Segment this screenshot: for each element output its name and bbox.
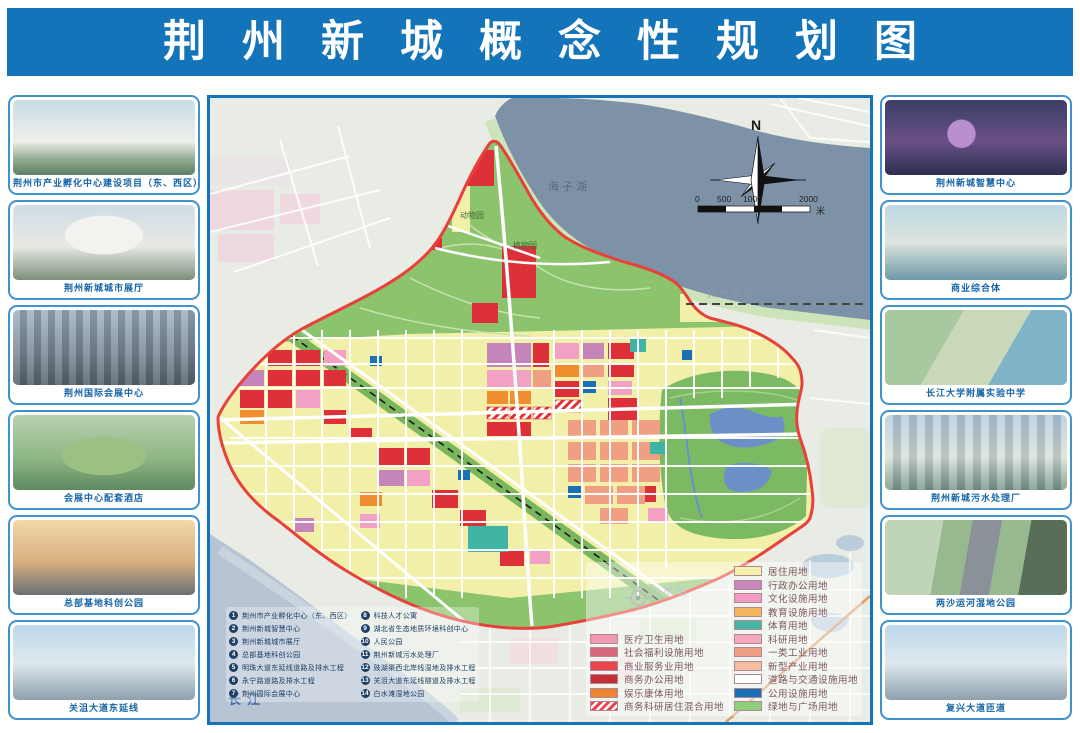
project-caption: 荆州市产业孵化中心建设项目（东、西区） (13, 175, 195, 190)
legend-item: 商务科研居住混合用地 (590, 700, 724, 714)
project-photo (13, 205, 195, 280)
project-caption: 荆州新城污水处理厂 (885, 490, 1067, 505)
project-index-label: 湖北省生态地质环境科创中心 (374, 624, 469, 634)
legend-item: 科研用地 (734, 632, 858, 646)
legend-swatch (734, 607, 762, 617)
svg-text:500: 500 (717, 194, 731, 204)
project-photo (885, 100, 1067, 175)
project-caption: 总部基地科创公园 (13, 595, 195, 610)
legend-label: 一类工业用地 (768, 645, 828, 659)
project-card: 荆州新城污水处理厂 (880, 410, 1072, 510)
legend-label: 新型产业用地 (768, 659, 828, 673)
legend-item: 居住用地 (734, 565, 858, 579)
page-title: 荆州新城概念性规划图 (127, 21, 953, 64)
project-index-item: 3 荆州新城城市展厅 (229, 635, 352, 648)
project-photo (885, 310, 1067, 385)
legend-swatch (590, 701, 618, 711)
project-index-number: 9 (361, 624, 370, 633)
project-index-number: 5 (229, 663, 238, 672)
legend-label: 道路与交通设施用地 (768, 672, 858, 686)
project-index-item: 5 明珠大道东延线道路及排水工程 (229, 661, 352, 674)
legend-swatch (734, 580, 762, 590)
project-card: 商业综合体 (880, 200, 1072, 300)
legend-swatch (734, 593, 762, 603)
project-index-number: 1 (229, 611, 238, 620)
legend-label: 商务科研居住混合用地 (624, 699, 724, 713)
svg-text:0: 0 (695, 194, 700, 204)
project-index-item: 1 荆州市产业孵化中心（东、西区） (229, 609, 352, 622)
project-index-number: 2 (229, 624, 238, 633)
project-index-item: 12 豉湖渠西北岸线湿地及排水工程 (361, 661, 476, 674)
legend-label: 科研用地 (768, 632, 808, 646)
project-index-number: 4 (229, 650, 238, 659)
project-index-label: 荆州新城城市展厅 (242, 637, 300, 647)
planning-poster: 荆州新城概念性规划图 荆州市产业孵化中心建设项目（东、西区） 荆州新城城市展厅 … (0, 0, 1080, 733)
botanic-garden-label: 植物园 (513, 240, 537, 250)
project-index-item: 4 总部基地科创公园 (229, 648, 352, 661)
project-card: 两沙运河湿地公园 (880, 515, 1072, 615)
legend-item: 公用设施用地 (734, 686, 858, 700)
project-caption: 长江大学附属实验中学 (885, 385, 1067, 400)
legend-label: 体育用地 (768, 618, 808, 632)
legend-swatch (590, 674, 618, 684)
legend-swatch (590, 661, 618, 671)
project-photo (885, 625, 1067, 700)
project-index-label: 荆州市产业孵化中心（东、西区） (242, 611, 352, 621)
project-index-item: 13 关沮大道东延线隧道及排水工程 (361, 674, 476, 687)
project-index-label: 永宁路道路及排水工程 (242, 676, 315, 686)
legend-item: 娱乐康体用地 (590, 686, 724, 700)
project-index-label: 荆州新城污水处理厂 (374, 650, 440, 660)
legend-item: 新型产业用地 (734, 659, 858, 673)
compass-north-label: N (751, 117, 761, 133)
legend-right-column: 居住用地 行政办公用地 文化设施用地 教育设施用地 (734, 565, 858, 714)
legend-item: 道路与交通设施用地 (734, 673, 858, 687)
legend-swatch (590, 688, 618, 698)
project-index: 1 荆州市产业孵化中心（东、西区） 2 荆州新城智慧中心 3 荆州新城城市展厅 (226, 607, 479, 702)
legend-label: 商务办公用地 (624, 672, 684, 686)
legend-swatch (734, 566, 762, 576)
pipeline-label: 川气东送 (708, 288, 754, 300)
legend-swatch (734, 701, 762, 711)
svg-text:1000: 1000 (743, 194, 762, 204)
legend-label: 公用设施用地 (768, 686, 828, 700)
scale-unit: 米 (816, 205, 825, 216)
project-index-item: 8 科技人才公寓 (361, 609, 476, 622)
legend-label: 娱乐康体用地 (624, 686, 684, 700)
project-photo (885, 205, 1067, 280)
project-index-label: 科技人才公寓 (374, 611, 418, 621)
legend-left-column: 医疗卫生用地 社会福利设施用地 商业服务业用地 商务办公用地 (590, 632, 724, 713)
project-index-number: 10 (361, 637, 370, 646)
project-card: 总部基地科创公园 (8, 515, 200, 615)
legend-swatch (734, 674, 762, 684)
legend-item: 商务办公用地 (590, 673, 724, 687)
zoo-label: 动物园 (460, 210, 484, 220)
lake-label: 海子湖 (548, 179, 590, 193)
project-index-number: 13 (361, 676, 370, 685)
legend-label: 绿地与广场用地 (768, 699, 838, 713)
project-card: 关沮大道东延线 (8, 620, 200, 720)
legend-item: 体育用地 (734, 619, 858, 633)
project-caption: 荆州国际会展中心 (13, 385, 195, 400)
project-caption: 荆州新城智慧中心 (885, 175, 1067, 190)
project-index-label: 荆州新城智慧中心 (242, 624, 300, 634)
legend-label: 行政办公用地 (768, 578, 828, 592)
project-index-label: 人民公园 (374, 637, 403, 647)
project-index-number: 12 (361, 663, 370, 672)
project-index-label: 明珠大道东延线道路及排水工程 (242, 663, 344, 673)
legend-swatch (590, 647, 618, 657)
legend-item: 商业服务业用地 (590, 659, 724, 673)
project-index-item: 6 永宁路道路及排水工程 (229, 674, 352, 687)
project-caption: 关沮大道东延线 (13, 700, 195, 715)
project-card: 会展中心配套酒店 (8, 410, 200, 510)
legend-swatch (734, 688, 762, 698)
project-photo (885, 520, 1067, 595)
legend-label: 医疗卫生用地 (624, 632, 684, 646)
project-caption: 荆州新城城市展厅 (13, 280, 195, 295)
project-card: 复兴大道匝道 (880, 620, 1072, 720)
legend-item: 社会福利设施用地 (590, 646, 724, 660)
map-panel: 川气东送 沙市站 N 0 (207, 95, 873, 725)
project-index-label: 关沮大道东延线隧道及排水工程 (374, 676, 476, 686)
legend-item: 教育设施用地 (734, 605, 858, 619)
project-index-label: 总部基地科创公园 (242, 650, 300, 660)
legend-swatch (590, 634, 618, 644)
project-index-item: 14 白水滩湿地公园 (361, 687, 476, 700)
legend-item: 一类工业用地 (734, 646, 858, 660)
project-photo (13, 415, 195, 490)
project-index-number: 11 (361, 650, 370, 659)
project-index-right: 8 科技人才公寓 9 湖北省生态地质环境科创中心 10 人民公园 11 (361, 609, 476, 700)
project-index-left: 1 荆州市产业孵化中心（东、西区） 2 荆州新城智慧中心 3 荆州新城城市展厅 (229, 609, 352, 700)
project-card: 荆州国际会展中心 (8, 305, 200, 405)
legend-item: 行政办公用地 (734, 578, 858, 592)
legend-label: 文化设施用地 (768, 591, 828, 605)
land-use-legend: 医疗卫生用地 社会福利设施用地 商业服务业用地 商务办公用地 (586, 562, 862, 717)
project-photo (885, 415, 1067, 490)
legend-item: 医疗卫生用地 (590, 632, 724, 646)
project-index-label: 荆州国际会展中心 (242, 689, 300, 699)
project-index-number: 3 (229, 637, 238, 646)
project-index-item: 10 人民公园 (361, 635, 476, 648)
project-photo (13, 100, 195, 175)
project-card: 荆州新城城市展厅 (8, 200, 200, 300)
legend-label: 居住用地 (768, 564, 808, 578)
legend-item: 文化设施用地 (734, 592, 858, 606)
legend-label: 教育设施用地 (768, 605, 828, 619)
legend-label: 商业服务业用地 (624, 659, 694, 673)
project-index-label: 白水滩湿地公园 (374, 689, 425, 699)
project-index-number: 6 (229, 676, 238, 685)
project-index-item: 9 湖北省生态地质环境科创中心 (361, 622, 476, 635)
project-index-number: 14 (361, 689, 370, 698)
legend-swatch (734, 647, 762, 657)
project-caption: 商业综合体 (885, 280, 1067, 295)
project-card: 荆州新城智慧中心 (880, 95, 1072, 195)
legend-swatch (734, 620, 762, 630)
project-caption: 复兴大道匝道 (885, 700, 1067, 715)
project-photo (13, 310, 195, 385)
project-caption: 会展中心配套酒店 (13, 490, 195, 505)
legend-swatch (734, 634, 762, 644)
header-banner: 荆州新城概念性规划图 (7, 8, 1073, 76)
project-card: 荆州市产业孵化中心建设项目（东、西区） (8, 95, 200, 195)
right-project-column: 荆州新城智慧中心 商业综合体 长江大学附属实验中学 荆州新城污水处理厂 两沙运河… (880, 95, 1072, 720)
svg-text:2000: 2000 (799, 194, 818, 204)
legend-label: 社会福利设施用地 (624, 645, 704, 659)
project-index-item: 2 荆州新城智慧中心 (229, 622, 352, 635)
legend-swatch (734, 661, 762, 671)
legend-item: 绿地与广场用地 (734, 700, 858, 714)
project-index-label: 豉湖渠西北岸线湿地及排水工程 (374, 663, 476, 673)
project-photo (13, 520, 195, 595)
project-index-number: 8 (361, 611, 370, 620)
project-index-item: 7 荆州国际会展中心 (229, 687, 352, 700)
project-index-item: 11 荆州新城污水处理厂 (361, 648, 476, 661)
project-caption: 两沙运河湿地公园 (885, 595, 1067, 610)
project-card: 长江大学附属实验中学 (880, 305, 1072, 405)
project-photo (13, 625, 195, 700)
project-index-number: 7 (229, 689, 238, 698)
left-project-column: 荆州市产业孵化中心建设项目（东、西区） 荆州新城城市展厅 荆州国际会展中心 会展… (8, 95, 200, 720)
